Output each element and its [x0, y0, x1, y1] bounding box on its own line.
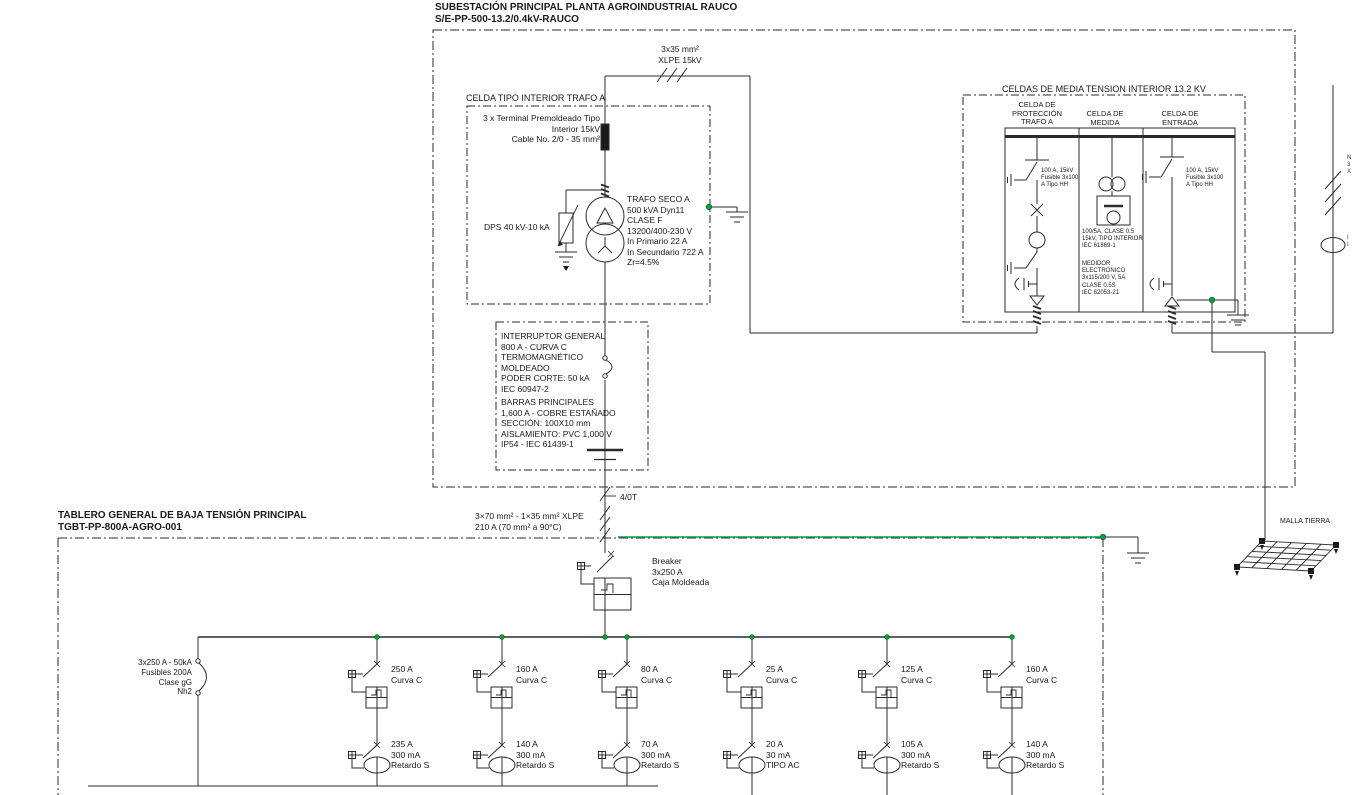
mv-cable-label: 3x35 mm² XLPE 15kV — [638, 44, 722, 65]
cell-header-medida: CELDA DE MEDIDA — [1067, 110, 1143, 127]
main-breaker-symbol — [578, 551, 632, 637]
ct-label: 100/5A, CLASE 0.5 15kV, TIPO INTERIOR IE… — [1082, 229, 1143, 251]
interruptor-general-label: INTERRUPTOR GENERAL 800 A - CURVA C TERM… — [501, 331, 641, 394]
premolded-terminal-symbol — [601, 124, 609, 150]
tgbt-title: TABLERO GENERAL DE BAJA TENSIÓN PRINCIPA… — [58, 510, 388, 533]
barras-label: BARRAS PRINCIPALES 1,600 A - COBRE ESTAÑ… — [501, 397, 641, 450]
malla-tierra-label: MALLA TIERRA — [1280, 517, 1330, 528]
fuse-switch-branch — [196, 637, 207, 786]
celda-entrada-internals — [1143, 138, 1185, 333]
feeder-mccb-label: 25 A Curva C — [766, 664, 797, 685]
terminal-label: 3 x Terminal Premoldeado Tipo Interior 1… — [470, 113, 600, 145]
capacitive-divider-symbol — [1150, 278, 1172, 290]
feeder-rcd-label: 235 A 300 mA Retardo S — [391, 739, 429, 771]
fuse-label-entrada: 100 A, 15kV Fusible 3x100 A Tipo HH — [1186, 168, 1223, 190]
lv-cable-label: 3×70 mm² - 1×35 mm² XLPE 210 A (70 mm² a… — [475, 511, 584, 532]
feeder-mccb-label: 160 A Curva C — [516, 664, 547, 685]
single-line-diagram: SUBESTACIÓN PRINCIPAL PLANTA AGROINDUSTR… — [0, 0, 1353, 795]
cell-header-entrada: CELDA DE ENTRADA — [1140, 110, 1220, 127]
wye-winding-icon — [598, 237, 612, 253]
medidor-label: MEDIDOR ELECTRÓNICO 3x115/200 V, 5A CLAS… — [1082, 261, 1125, 297]
fuse-switch-label: 3x250 A - 50kA Fusibles 200A Clase gG Nh… — [102, 658, 192, 697]
feeder-mccb-label: 250 A Curva C — [391, 664, 422, 685]
celda-medida-internals — [1097, 138, 1130, 225]
main-breaker-label: Breaker 3x250 A Caja Moldeada — [652, 556, 709, 588]
lv-cable-run — [600, 487, 616, 553]
feeder-rcd-label: 105 A 300 mA Retardo S — [901, 739, 939, 771]
trafo-label: TRAFO SECO A 500 kVA Dyn11 CLASE F 13200… — [627, 194, 719, 268]
diagram-title: SUBESTACIÓN PRINCIPAL PLANTA AGROINDUSTR… — [435, 2, 855, 25]
feeder-mccb-label: 160 A Curva C — [1026, 664, 1057, 685]
mv-earthing — [1177, 300, 1265, 540]
capacitive-divider-symbol — [1015, 278, 1037, 290]
clipped-edge-label: I I — [1347, 235, 1349, 249]
dps-surge-arrester-symbol — [555, 190, 605, 271]
cell-header-proteccion: CELDA DE PROTECCIÓN TRAFO A — [999, 101, 1075, 127]
fuse-x-symbol — [1031, 204, 1043, 216]
clipped-edge-label: N 3 X — [1347, 155, 1351, 177]
celda-proteccion-internals — [1008, 138, 1050, 324]
dps-label: DPS 40 kV-10 kA — [484, 222, 550, 233]
feeder-mccb-label: 80 A Curva C — [641, 664, 672, 685]
cable-termination-triangle — [1165, 297, 1179, 306]
lv-tap-label: 4/0T — [620, 492, 637, 503]
fuse-label-proteccion: 100 A, 15kV Fusible 3x100 A Tipo HH — [1041, 168, 1078, 190]
feeder-mccb-label: 125 A Curva C — [901, 664, 932, 685]
cable-termination-triangle — [1030, 296, 1044, 305]
feeder-branches — [349, 637, 1026, 795]
feeder-rcd-label: 20 A 30 mA TIPO AC — [766, 739, 800, 771]
feeder-rcd-label: 140 A 300 mA Retardo S — [516, 739, 554, 771]
celdas-mt-title: CELDAS DE MEDIA TENSION INTERIOR 13.2 KV — [963, 84, 1245, 94]
feeder-rcd-label: 140 A 300 mA Retardo S — [1026, 739, 1064, 771]
delta-winding-icon — [597, 208, 613, 223]
feeder-rcd-label: 70 A 300 mA Retardo S — [641, 739, 679, 771]
celda-trafo-title: CELDA TIPO INTERIOR TRAFO A — [466, 93, 605, 103]
malla-tierra-mesh — [1234, 538, 1339, 580]
